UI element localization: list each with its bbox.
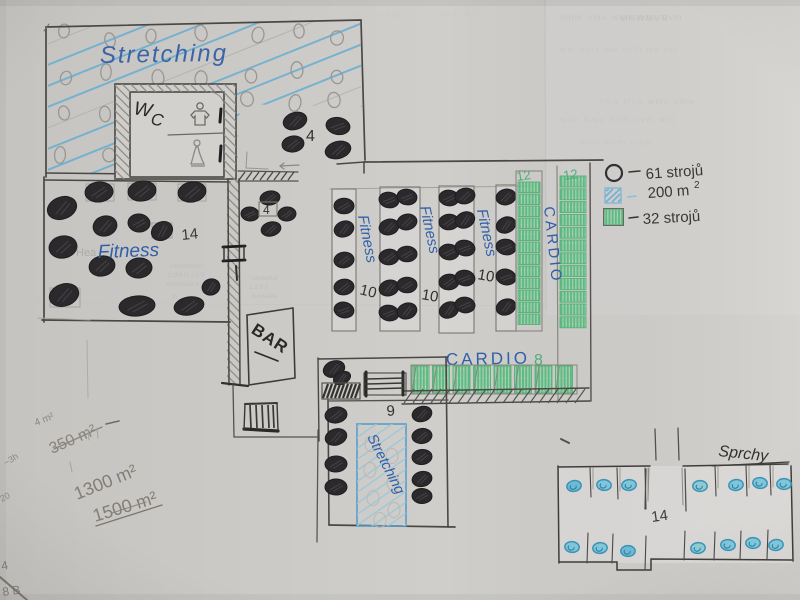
svg-text:Hea: Hea (76, 247, 97, 259)
svg-text:kuwsvala: kuwsvala (252, 294, 277, 300)
svg-text:wm hmv uw nvm wv nm: wm hmv uw nvm wv nm (559, 44, 679, 54)
svg-text:14: 14 (650, 507, 669, 526)
svg-text:12: 12 (515, 167, 531, 184)
svg-text:32 strojů: 32 strojů (642, 208, 700, 228)
svg-text:MHWMVR: MHWMVR (620, 13, 669, 23)
svg-text:4: 4 (263, 203, 270, 217)
svg-text:nachollation: nachollation (170, 264, 202, 270)
svg-text:sv: sv (172, 294, 178, 300)
svg-text:14: 14 (181, 225, 199, 244)
svg-text:10: 10 (476, 266, 495, 286)
svg-text:mvu wnm vmw: mvu wnm vmw (580, 137, 653, 147)
svg-text:castwmal: castwmal (252, 276, 277, 282)
svg-text:10: 10 (420, 286, 439, 306)
svg-text:4: 4 (306, 128, 315, 145)
svg-text:kennwand w: kennwand w (166, 282, 200, 288)
svg-text:2: 2 (694, 180, 700, 191)
svg-text:200 m: 200 m (647, 182, 690, 202)
svg-text:Fitness: Fitness (97, 240, 159, 263)
svg-text:wm uv nm: wm uv nm (349, 10, 401, 20)
svg-text:wvh mwu nvm uvm wm: wvh mwu nvm uvm wm (559, 114, 675, 124)
svg-text:8 B: 8 B (1, 583, 21, 599)
svg-text:nvw mvu wmv umw: nvw mvu wmv umw (600, 96, 696, 106)
svg-text:12: 12 (562, 166, 578, 183)
svg-text:nvm wv: nvm wv (440, 8, 478, 18)
svg-text:LOMUS 2 0 0: LOMUS 2 0 0 (168, 273, 205, 279)
svg-text:L 2 0 0: L 2 0 0 (250, 285, 269, 291)
svg-text:Stretching: Stretching (100, 40, 229, 69)
svg-text:9: 9 (386, 402, 396, 420)
